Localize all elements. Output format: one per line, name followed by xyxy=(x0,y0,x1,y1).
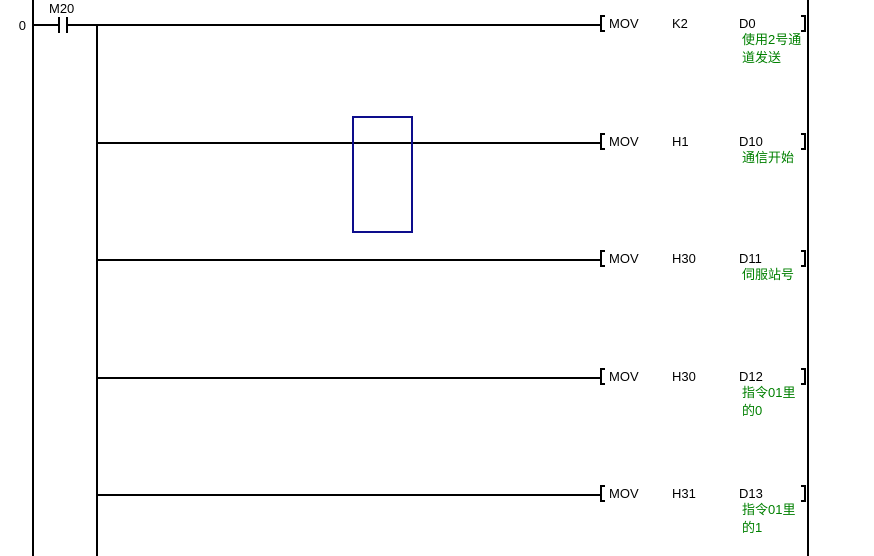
instruction-mnemonic[interactable]: MOV xyxy=(609,251,639,267)
rung-line xyxy=(96,494,600,496)
rung-line xyxy=(96,377,600,379)
instruction-source-operand[interactable]: H1 xyxy=(672,134,689,150)
left-bracket xyxy=(600,250,605,267)
step-number: 0 xyxy=(8,18,26,33)
instruction-dest-operand[interactable]: D0 xyxy=(739,16,756,32)
instruction-source-operand[interactable]: H30 xyxy=(672,251,696,267)
rung-line xyxy=(32,24,58,26)
left-power-rail xyxy=(32,0,34,556)
instruction-mnemonic[interactable]: MOV xyxy=(609,486,639,502)
instruction-source-operand[interactable]: H31 xyxy=(672,486,696,502)
instruction-dest-operand[interactable]: D13 xyxy=(739,486,763,502)
rung-line xyxy=(68,24,600,26)
instruction-source-operand[interactable]: K2 xyxy=(672,16,688,32)
rung-line xyxy=(96,142,600,144)
left-bracket xyxy=(600,368,605,385)
right-bracket xyxy=(801,485,806,502)
left-bracket xyxy=(600,15,605,32)
device-comment: 通信开始 xyxy=(742,149,794,167)
instruction-dest-operand[interactable]: D11 xyxy=(739,251,762,267)
edit-cursor[interactable] xyxy=(352,116,413,233)
ladder-canvas: 0 M20 MOV K2 D0 使用2号通 道发送 MOV H1 D10 通信开… xyxy=(0,0,874,556)
left-bracket xyxy=(600,133,605,150)
instruction-source-operand[interactable]: H30 xyxy=(672,369,696,385)
instruction-mnemonic[interactable]: MOV xyxy=(609,369,639,385)
contact-label: M20 xyxy=(49,1,74,16)
device-comment: 指令01里 的0 xyxy=(742,384,795,420)
right-bracket xyxy=(801,250,806,267)
right-power-rail xyxy=(807,0,809,556)
left-bracket xyxy=(600,485,605,502)
instruction-mnemonic[interactable]: MOV xyxy=(609,134,639,150)
instruction-dest-operand[interactable]: D12 xyxy=(739,369,763,385)
rung-line xyxy=(96,259,600,261)
instruction-dest-operand[interactable]: D10 xyxy=(739,134,763,150)
contact-bar-left xyxy=(58,17,60,33)
device-comment: 伺服站号 xyxy=(742,266,794,284)
device-comment: 使用2号通 道发送 xyxy=(742,31,801,67)
instruction-mnemonic[interactable]: MOV xyxy=(609,16,639,32)
right-bracket xyxy=(801,15,806,32)
right-bracket xyxy=(801,133,806,150)
device-comment: 指令01里 的1 xyxy=(742,501,795,537)
branch-vertical-line xyxy=(96,24,98,556)
right-bracket xyxy=(801,368,806,385)
